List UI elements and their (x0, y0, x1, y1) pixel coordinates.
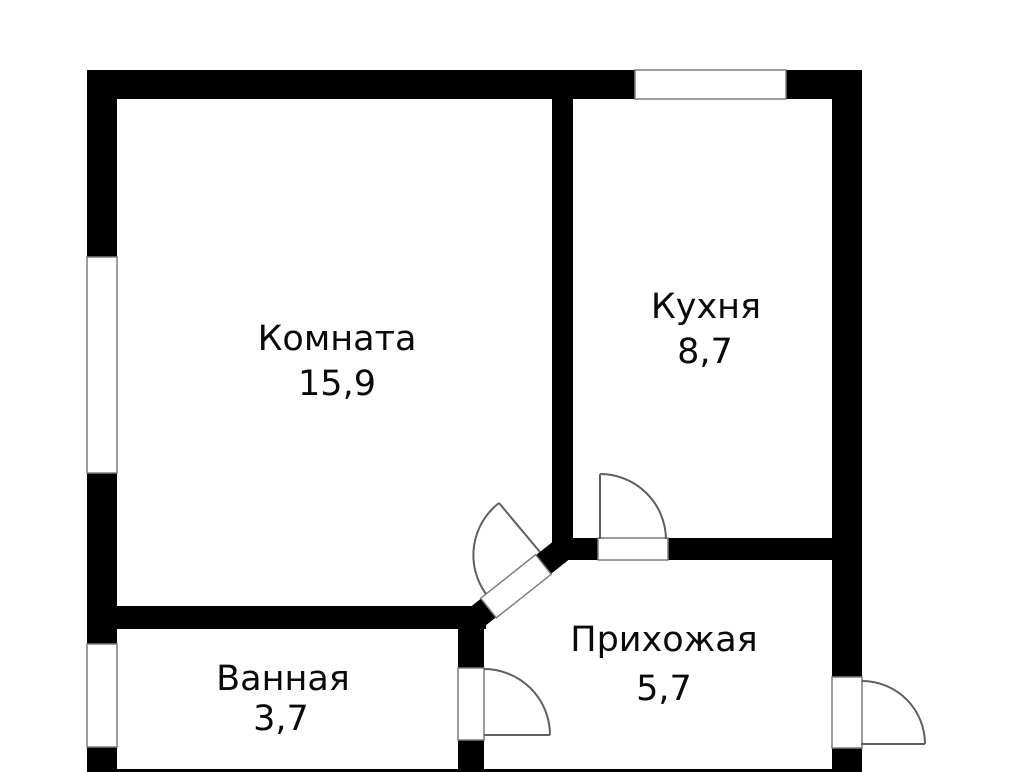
door-swing-kitchen (600, 474, 666, 539)
room-area-prihozhaya: 5,7 (636, 669, 692, 709)
door-arc-bathroom (484, 669, 550, 735)
room-label-kuhnya: Кухня (651, 287, 761, 327)
door-opening-bathroom (458, 668, 484, 740)
wall-bathroom-top (87, 606, 486, 629)
door-opening-diagonal (481, 555, 552, 618)
room-label-prihozhaya: Прихожая (570, 620, 757, 660)
window-left-upper (87, 257, 117, 473)
door-swing-bathroom (484, 669, 550, 735)
room-area-kuhnya: 8,7 (677, 332, 733, 372)
walls (87, 70, 862, 772)
door-arc-entrance (862, 681, 925, 744)
room-area-vannaya: 3,7 (253, 699, 309, 739)
room-label-vannaya: Ванная (216, 659, 350, 699)
door-arc-kitchen (600, 474, 666, 539)
wall-room-kitchen-divider (552, 99, 573, 550)
door-opening-kitchen (598, 538, 668, 560)
floorplan-canvas: Комната 15,9 Кухня 8,7 Ванная 3,7 Прихож… (0, 0, 1024, 772)
room-label-komnata: Комната (258, 319, 417, 359)
floorplan-drawing: Комната 15,9 Кухня 8,7 Ванная 3,7 Прихож… (0, 0, 1024, 772)
window-top (635, 70, 786, 99)
door-arc-diagonal (473, 503, 499, 594)
room-area-komnata: 15,9 (298, 364, 376, 404)
window-left-lower (87, 644, 117, 747)
outer-wall-right (832, 70, 862, 772)
door-leaf-diagonal (499, 503, 540, 552)
door-swing-entrance (861, 681, 925, 744)
door-opening-entrance (832, 677, 862, 748)
